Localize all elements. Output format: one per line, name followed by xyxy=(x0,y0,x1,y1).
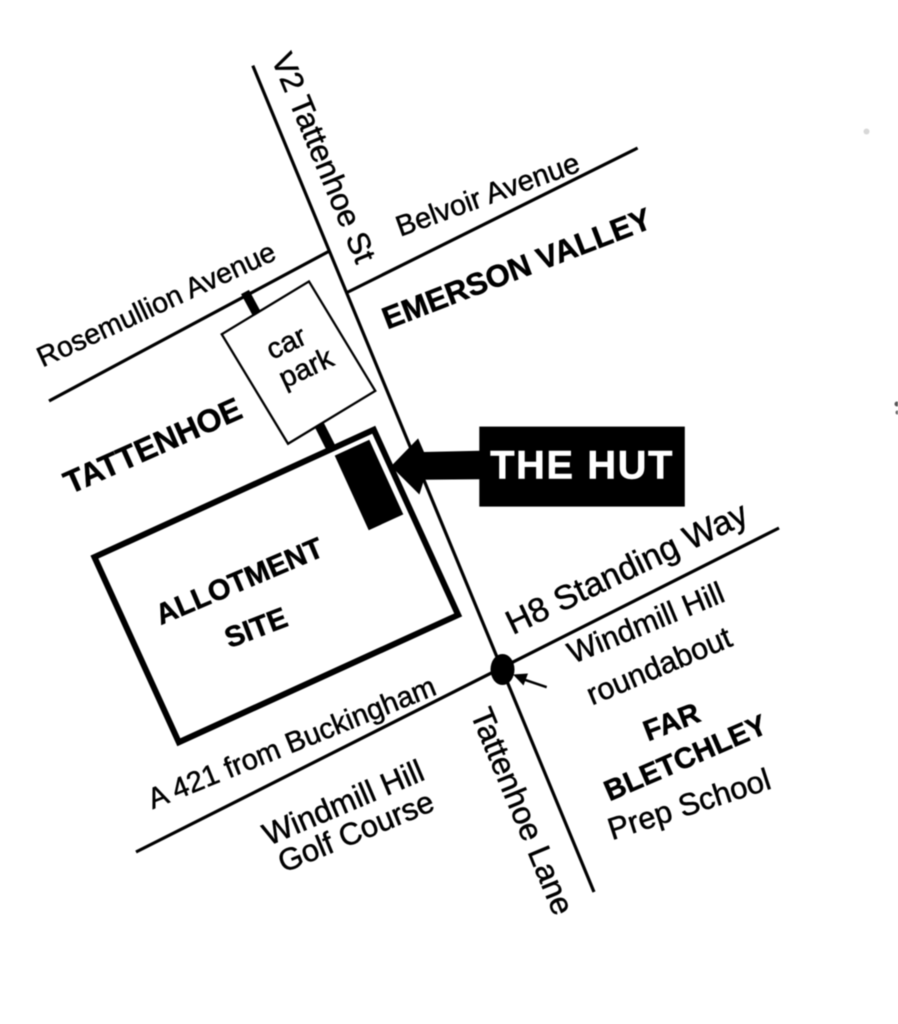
svg-text:THE HUT: THE HUT xyxy=(490,444,674,488)
